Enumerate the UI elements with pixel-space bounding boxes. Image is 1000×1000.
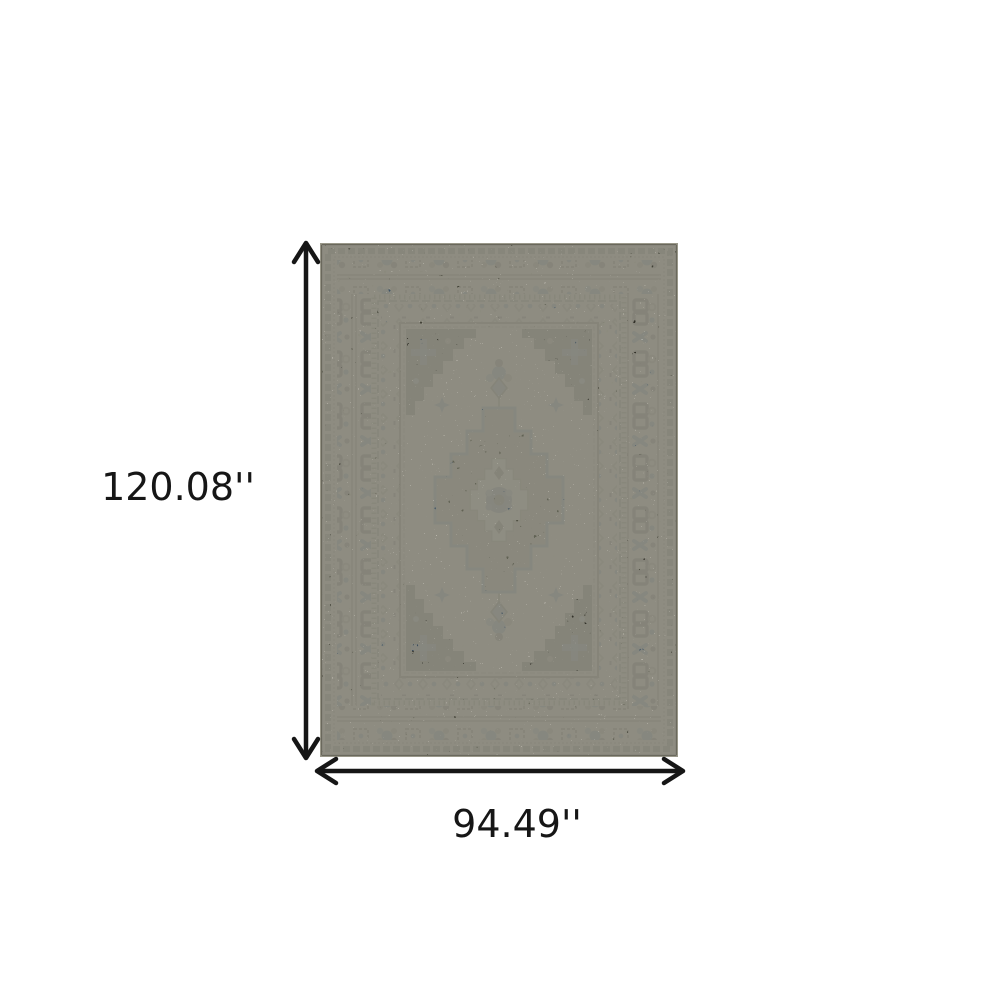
width-dimension-label: 94.49'' [397, 804, 637, 846]
rug-image [320, 243, 678, 757]
height-dimension-label: 120.08'' [58, 467, 298, 509]
product-dimension-diagram: 120.08'' 94.49'' [0, 0, 1000, 1000]
up-arrowhead-icon [294, 243, 318, 262]
down-arrowhead-icon [294, 739, 318, 758]
width-dimension-line [317, 759, 683, 783]
left-arrowhead-icon [317, 759, 336, 783]
right-arrowhead-icon [664, 759, 683, 783]
